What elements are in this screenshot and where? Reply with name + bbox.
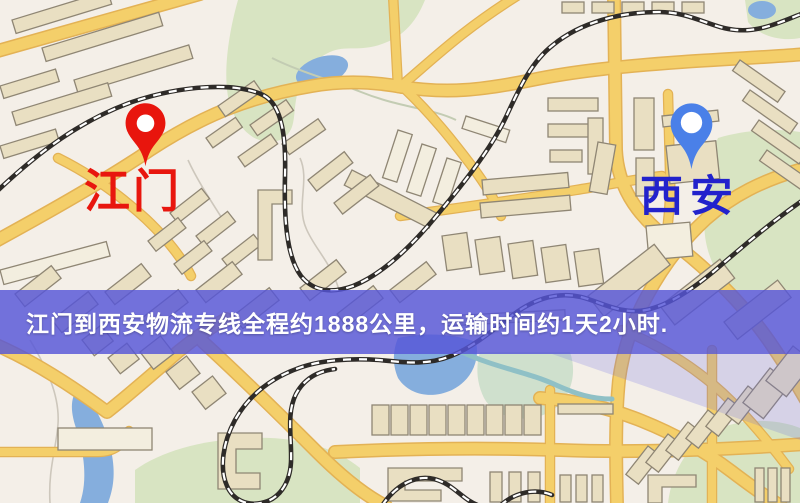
route-info-text: 江门到西安物流专线全程约1888公里，运输时间约1天2小时. <box>0 305 668 339</box>
origin-pin-icon <box>123 102 168 168</box>
route-map: 江门 西安 江门到西安物流专线全程约1888公里，运输时间约1天2小时. <box>0 0 800 503</box>
destination-label: 西安 <box>640 176 740 219</box>
map-canvas <box>0 0 800 503</box>
route-info-banner: 江门到西安物流专线全程约1888公里，运输时间约1天2小时. <box>0 290 800 354</box>
origin-label: 江门 <box>84 168 182 214</box>
destination-pin-icon <box>668 101 715 172</box>
